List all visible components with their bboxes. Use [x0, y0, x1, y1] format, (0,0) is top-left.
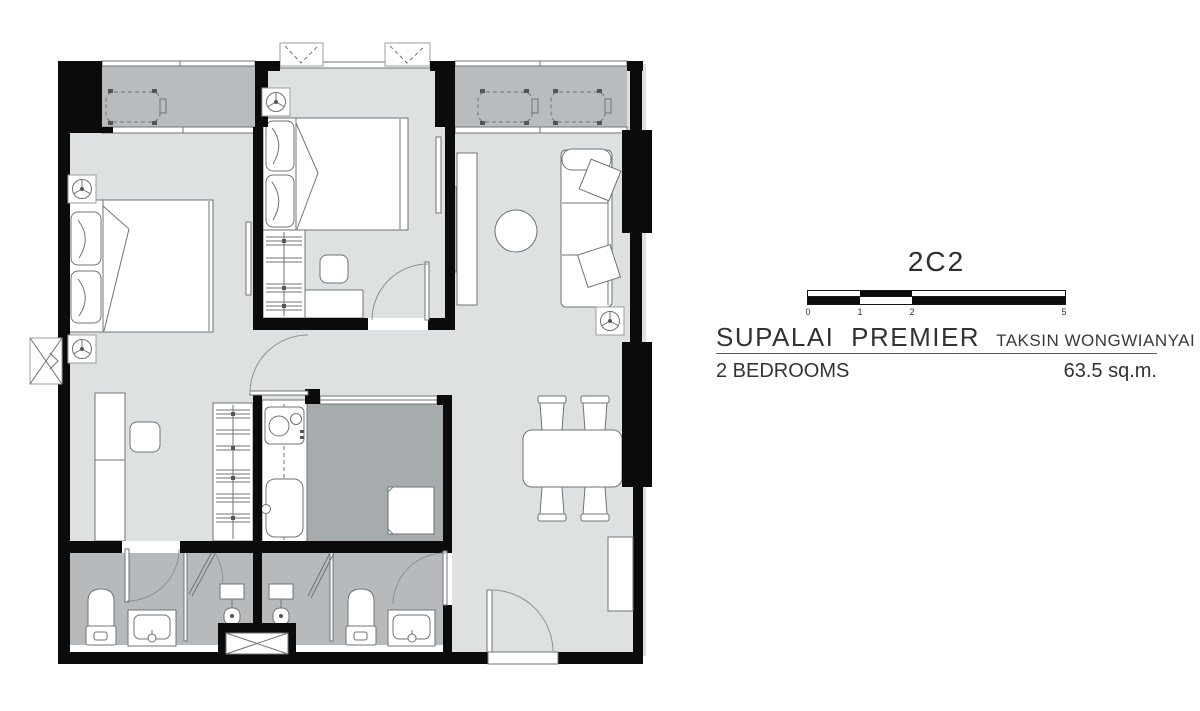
pillow	[266, 121, 294, 171]
double-bed	[263, 118, 408, 230]
tv-bedroom-2	[436, 137, 441, 213]
project-name: SUPALAI PREMIER	[716, 322, 980, 353]
dresser	[305, 290, 363, 318]
scale-bar-bottom	[807, 297, 1066, 305]
living-room-window	[455, 127, 627, 133]
pillow	[71, 271, 101, 323]
balcony-1-floor	[102, 66, 255, 127]
project-line: SUPALAI PREMIER TAKSIN WONGWIANYAI	[716, 322, 1157, 353]
double-bed	[68, 200, 213, 332]
area-label: 63.5 sq.m.	[1064, 360, 1157, 383]
stove-icon	[265, 407, 304, 444]
scale-ticks: 0 1 2 5	[807, 305, 1066, 317]
toilet-icon	[86, 589, 116, 645]
tv-bedroom-1	[246, 222, 251, 295]
closet	[95, 393, 125, 541]
floor-plan-drawing	[0, 0, 700, 711]
balcony-2-railing	[455, 61, 627, 66]
utility-symbol-icon	[262, 88, 290, 116]
fridge-icon	[388, 487, 434, 534]
tv-console	[457, 153, 477, 305]
project-location: TAKSIN WONGWIANYAI	[996, 331, 1195, 351]
vanity-basin-icon	[388, 610, 435, 646]
coffee-table	[495, 210, 537, 252]
exterior-shaft-icon	[30, 338, 62, 384]
scale-tick: 1	[857, 307, 862, 317]
shower-glass	[330, 548, 333, 641]
scale-bar: 0 1 2 5	[807, 290, 1066, 317]
utility-symbol-icon	[68, 335, 96, 363]
pillow	[71, 212, 101, 265]
wardrobe-hangers	[213, 403, 253, 541]
dining-chair	[538, 396, 566, 430]
shoe-cabinet	[608, 537, 633, 611]
wardrobe-hangers	[263, 230, 305, 318]
vanity-basin-icon	[128, 610, 176, 646]
divider-rule	[716, 353, 1157, 354]
title-block: 2C2 0 1 2 5 SUPALAI PREMIER TAKSIN WONGW…	[716, 246, 1157, 406]
shower-glass	[184, 548, 187, 641]
sofa	[561, 149, 621, 307]
spec-line: 2 BEDROOMS 63.5 sq.m.	[716, 360, 1157, 383]
utility-symbol-icon	[596, 307, 624, 335]
toilet-icon	[346, 589, 376, 645]
balcony-2-floor	[455, 66, 627, 127]
pillow	[266, 175, 294, 227]
dining-chair	[581, 487, 609, 521]
dining-chair	[538, 487, 566, 521]
unit-code: 2C2	[807, 246, 1066, 278]
bedroom-1-window	[102, 127, 255, 133]
scale-tick: 5	[1061, 307, 1066, 317]
scale-tick: 0	[805, 307, 810, 317]
stool	[130, 422, 160, 452]
dining-table	[523, 430, 622, 487]
dining-chair	[581, 396, 609, 430]
bedrooms-label: 2 BEDROOMS	[716, 360, 849, 383]
stool	[320, 255, 348, 283]
floor-plan-page: 2C2 0 1 2 5 SUPALAI PREMIER TAKSIN WONGW…	[0, 0, 1200, 711]
scale-tick: 2	[909, 307, 914, 317]
scale-bar-top	[807, 290, 1066, 297]
utility-symbol-icon	[68, 175, 96, 203]
duct-shaft-icon	[226, 633, 288, 654]
balcony-1-railing	[102, 61, 255, 66]
